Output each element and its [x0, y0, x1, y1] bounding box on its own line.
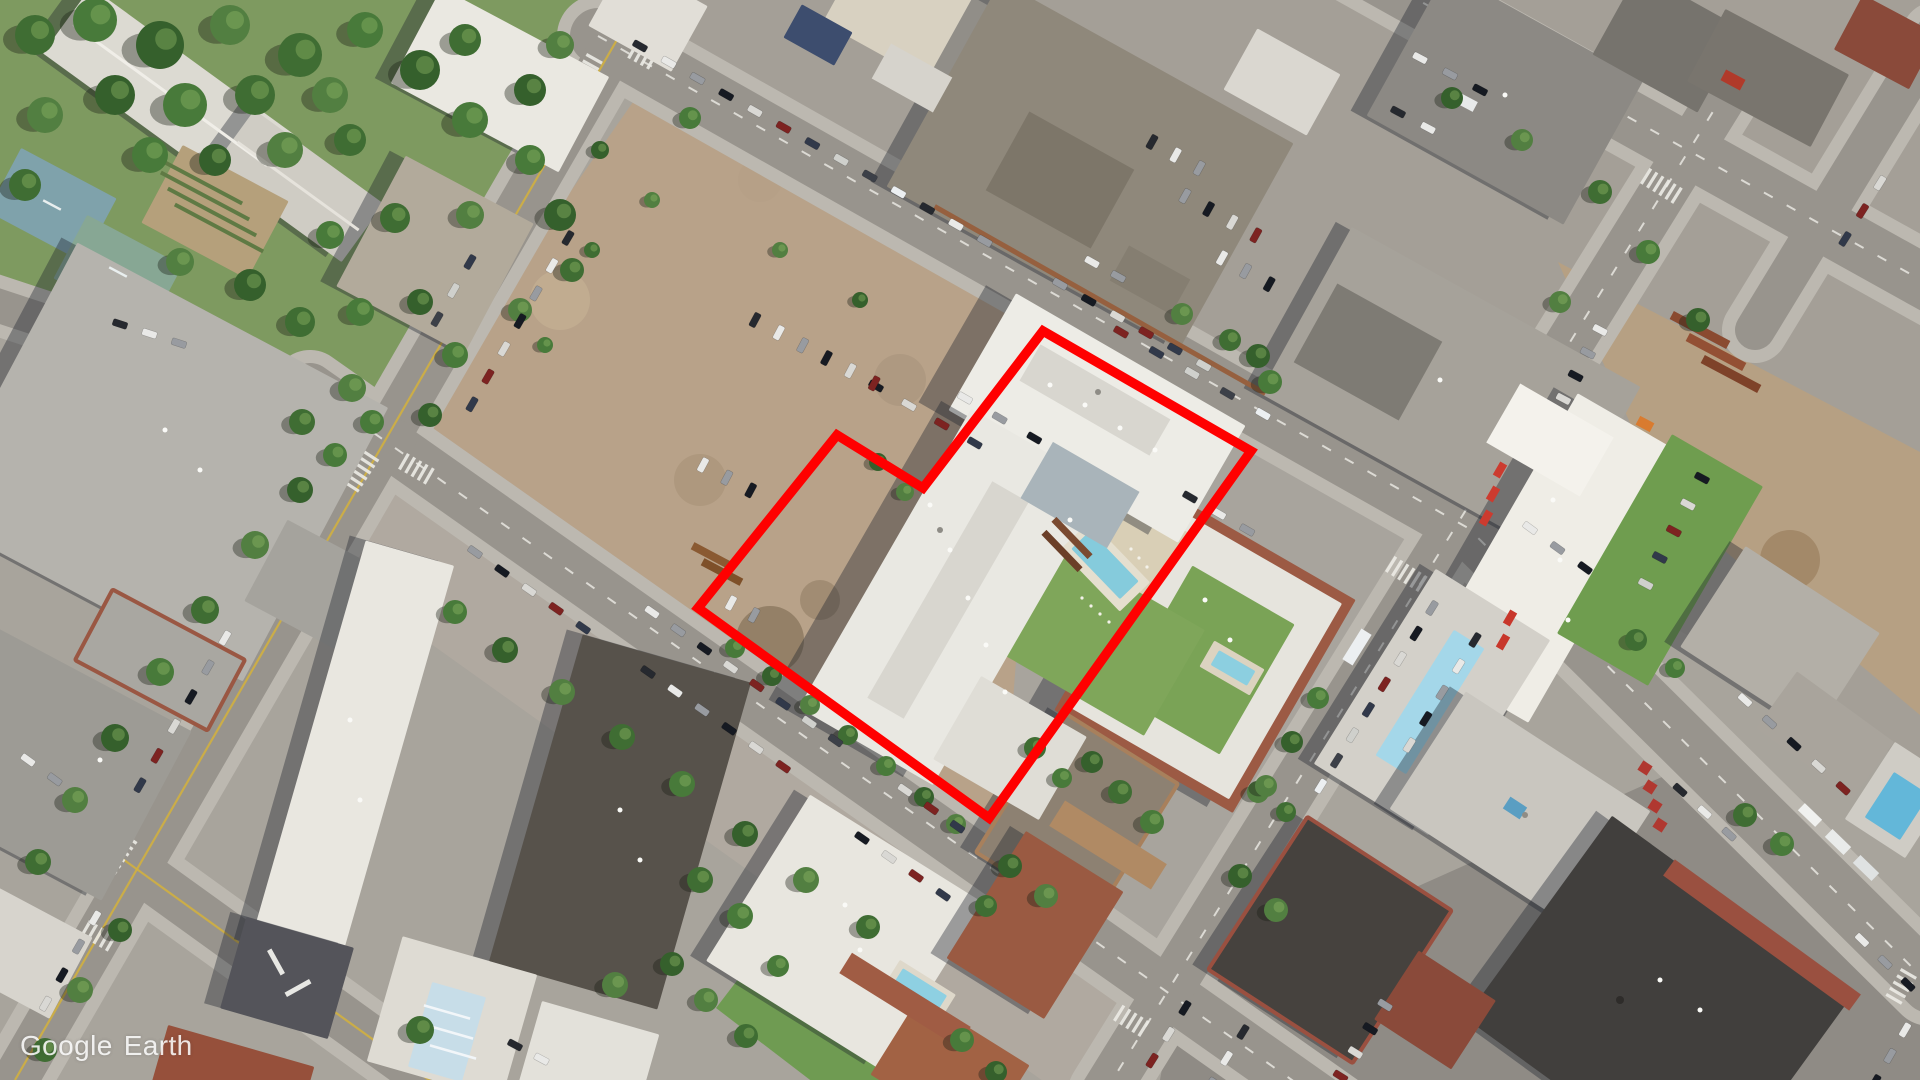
satellite-imagery[interactable] — [0, 0, 1920, 1080]
map-viewport[interactable]: Google Earth — [0, 0, 1920, 1080]
